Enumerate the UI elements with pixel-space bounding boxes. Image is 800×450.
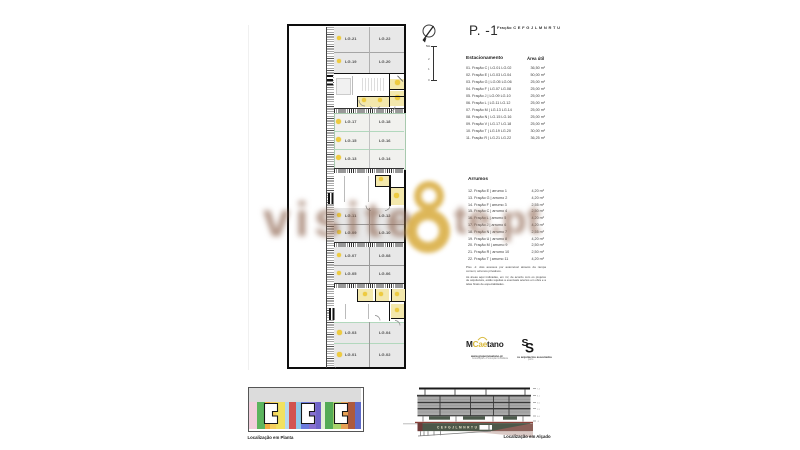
svg-text:C E F G J L M N R T U: C E F G J L M N R T U — [437, 426, 478, 430]
svg-text:6.1: 6.1 — [537, 396, 541, 398]
svg-text:7.4: 7.4 — [537, 389, 541, 391]
svg-text:-3: -3 — [537, 421, 540, 423]
svg-text:S: S — [525, 341, 534, 356]
svg-text:1.5: 1.5 — [537, 409, 541, 411]
svg-text:3.0: 3.0 — [537, 403, 541, 405]
svg-text:0.0: 0.0 — [537, 416, 541, 418]
